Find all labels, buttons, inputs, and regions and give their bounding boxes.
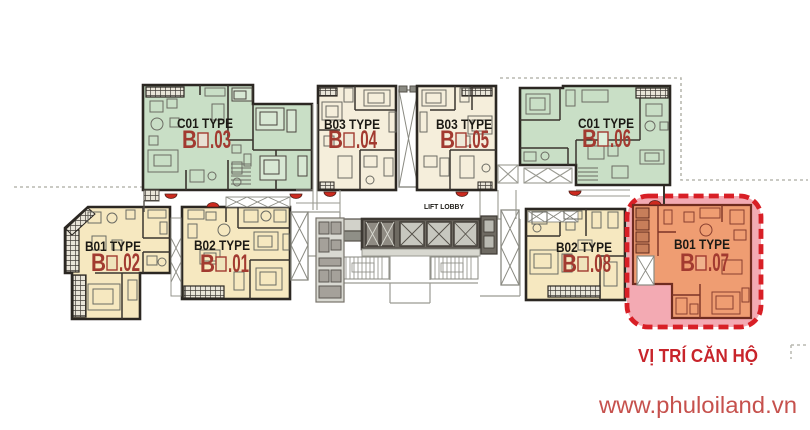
svg-text:.05: .05 bbox=[468, 126, 489, 154]
svg-text:.04: .04 bbox=[356, 126, 377, 154]
svg-text:.02: .02 bbox=[119, 249, 140, 277]
svg-text:B: B bbox=[91, 249, 106, 277]
svg-text:.01: .01 bbox=[228, 250, 249, 278]
svg-text:B: B bbox=[680, 249, 695, 277]
svg-text:B: B bbox=[440, 126, 455, 154]
svg-text:.06: .06 bbox=[610, 125, 631, 153]
svg-text:.07: .07 bbox=[708, 249, 729, 277]
svg-text:B: B bbox=[328, 126, 343, 154]
svg-text:B: B bbox=[182, 126, 197, 154]
svg-text:B: B bbox=[582, 125, 597, 153]
svg-text:LIFT LOBBY: LIFT LOBBY bbox=[424, 202, 464, 211]
svg-text:.03: .03 bbox=[210, 126, 231, 154]
svg-text:B: B bbox=[200, 250, 215, 278]
svg-text:B: B bbox=[562, 250, 577, 278]
svg-text:www.phuloiland.vn: www.phuloiland.vn bbox=[598, 392, 797, 418]
svg-text:.08: .08 bbox=[590, 250, 611, 278]
svg-text:VỊ TRÍ CĂN HỘ: VỊ TRÍ CĂN HỘ bbox=[638, 345, 758, 366]
